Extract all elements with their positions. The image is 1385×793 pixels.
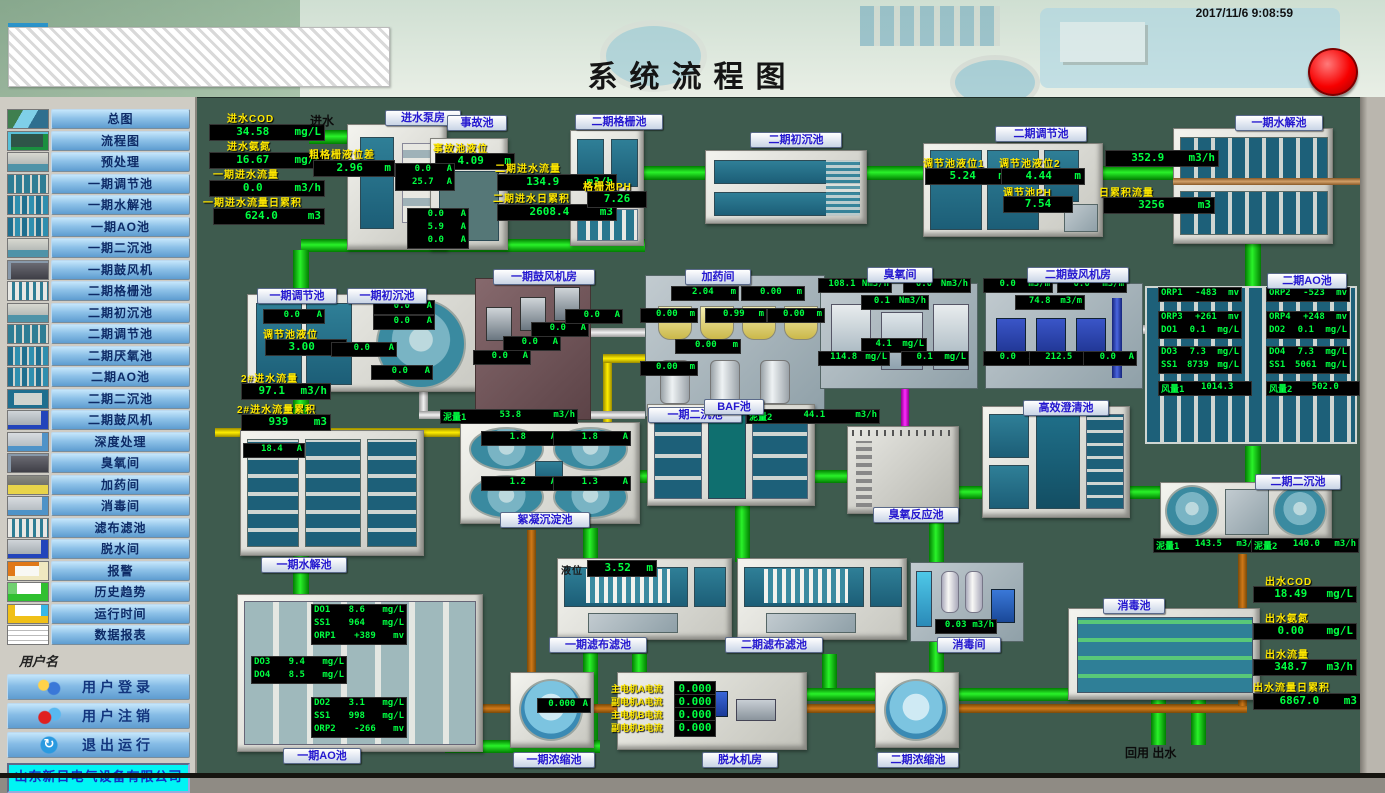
disinf-panel [916, 571, 932, 627]
sidebar-item-加药间[interactable]: 加药间 [7, 475, 190, 495]
aerial-thumb-icon [7, 109, 49, 129]
motor_b2-value: 0.000 [674, 720, 716, 737]
motor_a1-label: 主电机A电流 [611, 682, 663, 695]
datetime-display: 2017/11/6 9:08:59 [1196, 6, 1293, 20]
sidebar-item-label: 报警 [51, 561, 190, 581]
cells-thumb-icon [7, 367, 49, 387]
user-button-label: 用户注销 [82, 706, 189, 726]
nav-menu: 总图流程图预处理一期调节池一期水解池一期AO池一期二沉池一期鼓风机二期格栅池二期… [7, 109, 190, 645]
out_nh3-value: 0.00mg/L [1253, 623, 1357, 640]
label-ao1: 一期AO池 [283, 748, 361, 764]
thickener2-graphic [875, 672, 959, 748]
label-thick2: 二期浓缩池 [877, 752, 959, 768]
label-hydro_top: 一期水解池 [1235, 115, 1323, 131]
company-banner: 山东新日电气设备有限公司 [7, 763, 190, 793]
in_total2-label: 二期进水日累积 [493, 190, 570, 205]
ao2_g4-readout: ORP4+248mvDO20.1mg/L [1266, 311, 1350, 339]
sidebar-item-label: 二期初沉池 [51, 303, 190, 323]
hydro_flow-value: 352.9m3/h [1105, 150, 1219, 167]
pump_side-readout: 0.0A5.9A0.0A [407, 208, 469, 249]
out_total-value: 6867.0m3 [1253, 693, 1360, 710]
hydro-bottom-col3 [367, 439, 417, 547]
in_flow2-label: 二期进水流量 [495, 160, 561, 175]
flow-diagram-canvas: 进水泵房事故池二期格栅池二期初沉池二期调节池一期水解池一期调节池一期初沉池一期鼓… [197, 97, 1360, 774]
sidebar-item-label: 总图 [51, 109, 190, 129]
hopper-thumb-icon [7, 475, 49, 495]
grid_ph-value: 7.26 [587, 191, 647, 208]
disinfection-pool-graphic [1068, 608, 1260, 700]
cells-thumb-icon [7, 346, 49, 366]
sidebar-item-二期调节池[interactable]: 二期调节池 [7, 324, 190, 344]
dos4-readout: 0.99m [705, 308, 767, 323]
disinf-pump [991, 589, 1015, 623]
bl2_a3-readout: 0.0A [1083, 351, 1137, 366]
sidebar: 总图流程图预处理一期调节池一期水解池一期AO池一期二沉池一期鼓风机二期格栅池二期… [0, 97, 197, 773]
sidebar-item-一期调节池[interactable]: 一期调节池 [7, 174, 190, 194]
disinfection-lanes [1077, 617, 1253, 693]
sidebar-item-label: 臭氧间 [51, 453, 190, 473]
user-button-label: 用户登录 [82, 677, 189, 697]
machblue-thumb-icon [7, 539, 49, 559]
sidebar-item-二期格栅池[interactable]: 二期格栅池 [7, 281, 190, 301]
alarm-thumb-icon [7, 561, 49, 581]
bl2_f3-readout: 74.8m3/m [1015, 295, 1085, 310]
sidebar-item-运行时间[interactable]: 运行时间 [7, 604, 190, 624]
dosing-tank2 [710, 360, 740, 404]
dos6-readout: 0.00m [675, 339, 741, 354]
label-disinf_pool: 消毒池 [1103, 598, 1165, 614]
ao2_g6-readout: DO47.3mg/LSS15061mg/L [1266, 346, 1350, 374]
label-thick1: 一期浓缩池 [513, 752, 595, 768]
ozone-tank-stairs [856, 441, 872, 507]
disinf-cylinder1 [941, 571, 959, 613]
filt1-tray [588, 613, 678, 633]
basin-thumb-icon [7, 238, 49, 258]
t2_lvl1-value: 5.24m [925, 168, 1009, 185]
hydro-bottom-col2 [305, 439, 361, 547]
bl1_a4-readout: 0.0A [565, 309, 623, 324]
in_nh3-label: 进水氨氮 [227, 138, 271, 153]
sidebar-item-报警[interactable]: 报警 [7, 561, 190, 581]
sidebar-item-历史趋势[interactable]: 历史趋势 [7, 582, 190, 602]
pools-thumb-icon [7, 389, 49, 409]
sidebar-item-label: 一期调节池 [51, 174, 190, 194]
sidebar-item-流程图[interactable]: 流程图 [7, 131, 190, 151]
dos7-readout: 0.00m [640, 361, 698, 376]
ps1_a4-readout: 0.0A [371, 365, 433, 380]
sed2-center-building [1225, 489, 1269, 535]
sidebar-item-数据报表[interactable]: 数据报表 [7, 625, 190, 645]
grid_diff-label: 粗格栅液位差 [309, 146, 375, 161]
sidebar-item-label: 一期水解池 [51, 195, 190, 215]
dos3-readout: 0.00m [640, 308, 698, 323]
sidebar-item-总图[interactable]: 总图 [7, 109, 190, 129]
label-disinf_room: 消毒间 [937, 637, 1001, 653]
ao2_g3-readout: ORP3+261mvDO10.1mg/L [1158, 311, 1242, 339]
ozone-tank-railing [852, 430, 954, 436]
motor_b1-label: 主电机B电流 [611, 708, 663, 721]
in_total1-value: 624.0m3 [213, 208, 325, 225]
sidebar-item-二期二沉池[interactable]: 二期二沉池 [7, 389, 190, 409]
ps1_a3-readout: 0.0A [331, 342, 397, 357]
oz6-readout: 0.1mg/L [901, 351, 969, 366]
hydro1_amp-readout: 18.4A [243, 443, 305, 458]
ao1_g3-readout: DO23.1mg/LSS1998mg/LORP2-266mv [311, 697, 407, 738]
sed2-clarifier1 [1165, 485, 1219, 537]
dosing-tank3 [760, 360, 790, 404]
sidebar-item-label: 历史趋势 [51, 582, 190, 602]
dos2-readout: 0.00m [741, 286, 805, 301]
label-blower1: 一期鼓风机房 [493, 269, 595, 285]
cells-thumb-icon [7, 195, 49, 215]
sidebar-item-label: 流程图 [51, 131, 190, 151]
hydro_total-value: 3256m3 [1103, 197, 1215, 214]
ao2_f1-readout: 风量11014.3 [1158, 381, 1252, 396]
baf-cells-left [654, 411, 702, 499]
right-margin-strip [1360, 97, 1385, 773]
out_total-label: 出水流量日累积 [1253, 679, 1330, 694]
sed1_a4-readout: 1.3A [553, 476, 631, 491]
t2_lvl2-value: 4.44m [1001, 168, 1085, 185]
exit-icon: ↻ [34, 736, 64, 754]
sed1_a1-readout: 1.8A [481, 431, 559, 446]
filt1-outlet-cell [694, 567, 726, 607]
ao1_g1-readout: DO18.6mg/LSS1964mg/LORP1+389mv [311, 604, 407, 645]
blower2-header-pipe [1112, 298, 1122, 378]
machine-thumb-icon [7, 260, 49, 280]
sidebar-item-label: 滤布滤池 [51, 518, 190, 538]
pipe-ozone-clarifier [955, 486, 985, 499]
label-tank2: 二期调节池 [995, 126, 1087, 142]
clarifier-graphic [982, 406, 1130, 518]
flow-thumb-icon [7, 131, 49, 151]
cells-thumb-icon [7, 217, 49, 237]
page-title: 系统流程图 [0, 52, 1385, 96]
label-ozone: 臭氧间 [867, 267, 933, 283]
pipe-clarifier-sed2 [1125, 486, 1163, 499]
sidebar-item-label: 运行时间 [51, 604, 190, 624]
user-login-icon [34, 678, 64, 696]
sidebar-item-深度处理[interactable]: 深度处理 [7, 432, 190, 452]
inflow-text: 进水 [310, 112, 334, 129]
ao2_orp2-readout: ORP2-523mv [1266, 287, 1350, 302]
label-ao2: 二期AO池 [1267, 273, 1347, 289]
sidebar-item-预处理[interactable]: 预处理 [7, 152, 190, 172]
presed2-weir [826, 160, 860, 216]
oz5-readout: 114.8mg/L [818, 351, 890, 366]
alarm-lamp-icon[interactable] [1308, 48, 1358, 96]
ozone-contact-tank-graphic [847, 426, 959, 514]
user-buttons: 用户登录用户注销↻退出运行 [7, 674, 190, 758]
sidebar-item-一期鼓风机[interactable]: 一期鼓风机 [7, 260, 190, 280]
label-floc: 絮凝沉淀池 [500, 512, 590, 528]
label-dewater: 脱水机房 [702, 752, 778, 768]
sidebar-item-滤布滤池[interactable]: 滤布滤池 [7, 518, 190, 538]
p2_flow-value: 97.1m3/h [241, 383, 331, 400]
disinf-cylinder2 [965, 571, 983, 613]
trend-thumb-icon [7, 582, 49, 602]
ao2_orp1-readout: ORP1-483mv [1158, 287, 1242, 302]
label-dosing: 加药间 [685, 269, 751, 285]
退出运行-button[interactable]: ↻退出运行 [7, 732, 190, 758]
in_cod-label: 进水COD [227, 110, 274, 125]
hydro-top-graphic [1173, 128, 1333, 244]
presed2-graphic [705, 150, 867, 224]
sidebar-item-label: 二期格栅池 [51, 281, 190, 301]
sidebar-item-label: 消毒间 [51, 496, 190, 516]
sidebar-item-臭氧间[interactable]: 臭氧间 [7, 453, 190, 473]
label-presed2: 二期初沉池 [750, 132, 842, 148]
baf-cells-right [752, 411, 808, 499]
pump_top-readout: 0.0A25.7A [395, 163, 455, 191]
sidebar-item-脱水间[interactable]: 脱水间 [7, 539, 190, 559]
sidebar-item-一期水解池[interactable]: 一期水解池 [7, 195, 190, 215]
sed1_ni2-readout: 泥量244.1m3/h [746, 409, 880, 424]
pipe-baf-filt2 [735, 504, 750, 562]
filt2-discs [764, 569, 848, 603]
sidebar-item-label: 二期厌氧池 [51, 346, 190, 366]
bl1_a1-readout: 0.0A [473, 350, 531, 365]
ao1_g2-readout: DO39.4mg/LDO48.5mg/L [251, 656, 347, 684]
sidebar-item-label: 预处理 [51, 152, 190, 172]
sed1_a2-readout: 1.8A [553, 431, 631, 446]
report-thumb-icon [7, 625, 49, 645]
bl1_a2-readout: 0.0A [503, 336, 561, 351]
sed2-clarifier2 [1273, 485, 1327, 537]
machine-thumb-icon [7, 453, 49, 473]
sidebar-item-label: 加药间 [51, 475, 190, 495]
clarifier-win2 [989, 465, 1029, 509]
filt2-outlet-cell [870, 567, 902, 607]
thickener2-tank [884, 679, 948, 741]
dos5-readout: 0.00m [767, 308, 825, 323]
sidebar-item-label: 二期AO池 [51, 367, 190, 387]
ao2_g5-readout: DO37.3mg/LSS18739mg/L [1158, 346, 1242, 374]
room-thumb-icon [7, 432, 49, 452]
thick1_amp-readout: 0.000A [537, 698, 591, 713]
sidebar-item-label: 数据报表 [51, 625, 190, 645]
baf-channel [708, 411, 746, 499]
motor_b2-label: 副电机B电流 [611, 721, 663, 734]
label-clarifier: 高效澄清池 [1023, 400, 1109, 416]
grid_diff-value: 2.96m [313, 160, 395, 177]
sidebar-item-消毒间[interactable]: 消毒间 [7, 496, 190, 516]
sidebar-item-二期初沉池[interactable]: 二期初沉池 [7, 303, 190, 323]
tanks-thumb-icon [7, 174, 49, 194]
machblue-thumb-icon [7, 410, 49, 430]
disinf_flow-readout: 0.03m3/h [935, 619, 997, 634]
label-tank1: 一期调节池 [257, 288, 337, 304]
bl1_a3-readout: 0.0A [531, 322, 589, 337]
label-accident: 事故池 [447, 115, 507, 131]
scada-app: { "header": { "title": "系统流程图", "timesta… [0, 0, 1385, 778]
basin-thumb-icon [7, 303, 49, 323]
label-filt2: 二期滤布滤池 [725, 637, 823, 653]
out_flow-value: 348.7m3/h [1253, 659, 1357, 676]
用户注销-button[interactable]: 用户注销 [7, 703, 190, 729]
outflow-text: 回用 出水 [1125, 744, 1176, 761]
sidebar-item-label: 脱水间 [51, 539, 190, 559]
sidebar-item-label: 二期鼓风机 [51, 410, 190, 430]
t2_ph-value: 7.54 [1003, 196, 1073, 213]
sidebar-item-一期二沉池[interactable]: 一期二沉池 [7, 238, 190, 258]
sed2_ni1-readout: 泥量1143.5m3/h [1153, 538, 1261, 553]
label-filt1: 一期滤布滤池 [549, 637, 647, 653]
clarifier-win1 [989, 414, 1029, 458]
label-ozone_tank: 臭氧反应池 [873, 507, 959, 523]
basin-thumb-icon [7, 152, 49, 172]
sed2-graphic [1160, 482, 1332, 540]
label-blower2: 二期鼓风机房 [1027, 267, 1129, 283]
sidebar-item-label: 一期AO池 [51, 217, 190, 237]
out_cod-value: 18.49mg/L [1253, 586, 1357, 603]
runtime-thumb-icon [7, 604, 49, 624]
sidebar-item-二期鼓风机[interactable]: 二期鼓风机 [7, 410, 190, 430]
filt_lvl-label: 液位 [561, 562, 583, 577]
sed2_ni2-readout: 泥量2140.0m3/h [1251, 538, 1359, 553]
grid-thumb-icon [7, 281, 49, 301]
ps1_a2-readout: 0.0A [373, 315, 435, 330]
sidebar-item-一期AO池[interactable]: 一期AO池 [7, 217, 190, 237]
p2_total-value: 939m3 [241, 414, 331, 431]
label-hydro_bottom: 一期水解池 [261, 557, 347, 573]
sidebar-item-二期厌氧池[interactable]: 二期厌氧池 [7, 346, 190, 366]
clarifier-column [1036, 414, 1080, 509]
oz3-readout: 0.1Nm3/h [861, 295, 929, 310]
clarifier-lamella [1086, 414, 1124, 509]
filt_lvl-value: 3.52m [587, 560, 657, 577]
sidebar-item-label: 二期调节池 [51, 324, 190, 344]
sed1_ni1-readout: 泥量153.8m3/h [440, 409, 578, 424]
username-label: 用户名 [19, 651, 190, 670]
pipe-hydro-to-ao2 [1245, 244, 1261, 288]
user-logout-icon [34, 707, 64, 725]
sidebar-item-二期AO池[interactable]: 二期AO池 [7, 367, 190, 387]
sed1_a3-readout: 1.2A [481, 476, 559, 491]
sidebar-item-label: 一期鼓风机 [51, 260, 190, 280]
ao2_f2-readout: 风量2502.0 [1266, 381, 1360, 396]
label-sed2: 二期二沉池 [1255, 474, 1341, 490]
in_total1-label: 一期进水流量日累积 [203, 194, 302, 209]
filt2-tray [766, 613, 856, 633]
sidebar-item-label: 一期二沉池 [51, 238, 190, 258]
label-presed1: 一期初沉池 [347, 288, 427, 304]
user-button-label: 退出运行 [82, 735, 189, 755]
pipe-baf-ozone [815, 470, 849, 483]
header-photo-basins [860, 6, 1000, 46]
header: 系统流程图 2017/11/6 9:08:59 [0, 0, 1385, 99]
sidebar-item-label: 二期二沉池 [51, 389, 190, 409]
filt2-graphic [737, 558, 907, 640]
用户登录-button[interactable]: 用户登录 [7, 674, 190, 700]
sidebar-item-label: 深度处理 [51, 432, 190, 452]
hydro-top-lateral-pipe [1173, 178, 1360, 185]
motor_a2-label: 副电机A电流 [611, 695, 663, 708]
dos1-readout: 2.04m [671, 286, 739, 301]
label-baf: BAF池 [704, 399, 764, 415]
t1_amp-readout: 0.0A [263, 309, 325, 324]
label-grid2: 二期格栅池 [575, 114, 663, 130]
room-thumb-icon [7, 496, 49, 516]
tanks-thumb-icon [7, 324, 49, 344]
bottom-edge [0, 773, 1385, 778]
grid-thumb-icon [7, 518, 49, 538]
in_flow1-label: 一期进水流量 [213, 166, 279, 181]
dewater-press2 [736, 699, 776, 721]
